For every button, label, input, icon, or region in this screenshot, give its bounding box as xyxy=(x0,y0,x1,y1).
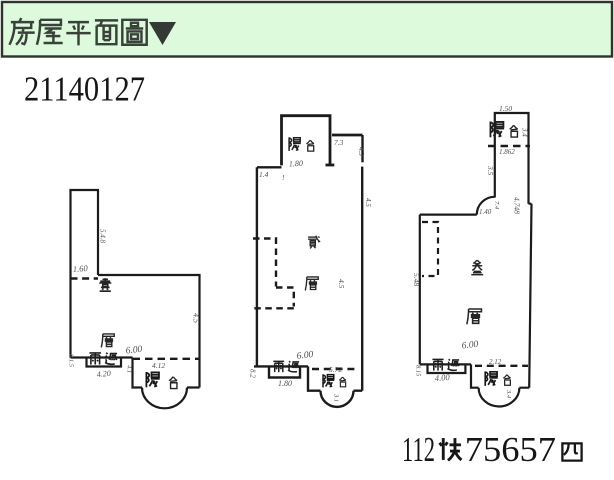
svg-text:6.00: 6.00 xyxy=(125,345,143,357)
svg-text:8.2: 8.2 xyxy=(249,369,257,378)
svg-text:4.5: 4.5 xyxy=(192,313,201,323)
svg-text:3.5: 3.5 xyxy=(486,165,495,176)
svg-text:4.748: 4.748 xyxy=(513,197,522,214)
svg-text:6.00: 6.00 xyxy=(296,350,314,362)
svg-text:5.48: 5.48 xyxy=(412,273,421,286)
svg-text:8.15: 8.15 xyxy=(415,365,422,377)
svg-text:1.50: 1.50 xyxy=(499,104,512,113)
svg-text:5.72: 5.72 xyxy=(329,365,342,374)
svg-text:75657: 75657 xyxy=(465,430,556,469)
svg-text:4.5: 4.5 xyxy=(337,279,346,289)
svg-text:5.4.8: 5.4.8 xyxy=(99,229,107,244)
svg-text:3.1: 3.1 xyxy=(333,393,340,402)
svg-text:7.3: 7.3 xyxy=(334,138,344,147)
svg-text:1.4: 1.4 xyxy=(259,170,269,179)
svg-text:4.20: 4.20 xyxy=(96,369,111,379)
svg-text:21140127: 21140127 xyxy=(24,70,145,109)
svg-text:4.3: 4.3 xyxy=(357,147,365,156)
svg-text:1.80: 1.80 xyxy=(278,379,292,388)
svg-text:7.4: 7.4 xyxy=(493,201,500,210)
svg-text:4.1: 4.1 xyxy=(126,365,133,373)
svg-text:1.40: 1.40 xyxy=(479,208,492,216)
svg-text:112: 112 xyxy=(402,430,435,469)
svg-text:8.1.5: 8.1.5 xyxy=(68,354,75,368)
svg-text:4.00: 4.00 xyxy=(434,372,450,383)
svg-text:4.5: 4.5 xyxy=(364,198,372,207)
svg-text:2.12: 2.12 xyxy=(489,358,502,366)
svg-text:3.4: 3.4 xyxy=(521,127,529,137)
svg-text:6.00: 6.00 xyxy=(461,340,479,352)
svg-text:1.60: 1.60 xyxy=(72,263,88,274)
svg-text:1.862: 1.862 xyxy=(499,148,515,156)
svg-text:3.4: 3.4 xyxy=(505,389,512,399)
svg-text:1.80: 1.80 xyxy=(289,159,303,169)
svg-text:4.12: 4.12 xyxy=(152,361,165,370)
